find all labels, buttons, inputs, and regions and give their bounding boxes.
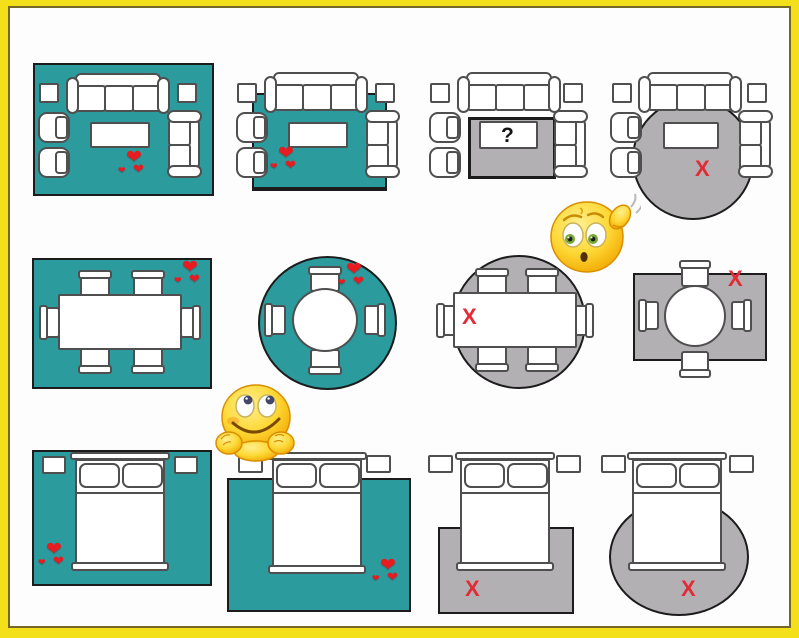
bedroom-1-pillow-left xyxy=(79,463,120,488)
dining-1-chair-left xyxy=(40,307,60,338)
bedroom-3-nightstand-right xyxy=(556,455,581,473)
living-1-armchair-bottom xyxy=(38,147,70,178)
dining-4-round-table xyxy=(664,285,726,347)
living-1-sofa xyxy=(66,73,170,112)
blanket-fold-line xyxy=(634,492,720,494)
living-4-loveseat xyxy=(736,110,771,178)
x-mark: X xyxy=(465,578,480,600)
living-3-sofa xyxy=(457,72,561,111)
bedroom-4-footboard xyxy=(628,562,726,571)
heart-icon: ❤ xyxy=(353,275,364,288)
bedroom-3-pillow-right xyxy=(507,463,548,488)
hearts-mark: ❤ ❤ ❤ xyxy=(338,260,374,296)
living-2-sofa xyxy=(264,72,368,111)
living-4-sofa xyxy=(638,72,742,111)
living-4-armchair-bottom xyxy=(610,147,642,178)
heart-icon: ❤ xyxy=(189,273,200,286)
x-mark: X xyxy=(681,578,696,600)
living-3-loveseat xyxy=(551,110,586,178)
living-1-coffee-table xyxy=(90,122,150,148)
bedroom-1-footboard xyxy=(71,562,169,571)
living-2-side-table-right xyxy=(375,83,395,103)
living-4-side-table-left xyxy=(612,83,632,103)
hearts-mark: ❤ ❤ ❤ xyxy=(38,540,74,576)
hearts-mark: ❤ ❤ ❤ xyxy=(174,258,210,294)
living-4-coffee-table xyxy=(663,122,719,149)
sofa-arm-left xyxy=(66,77,79,114)
bedroom-3-nightstand-left xyxy=(428,455,453,473)
blanket-fold-line xyxy=(462,492,548,494)
bedroom-2-pillow-right xyxy=(319,463,360,488)
living-2-side-table-left xyxy=(237,83,257,103)
living-4-side-table-right xyxy=(747,83,767,103)
heart-icon: ❤ xyxy=(174,277,182,286)
dining-2-chair-right xyxy=(364,305,385,335)
bedroom-1-headboard xyxy=(70,452,170,460)
heart-icon: ❤ xyxy=(53,555,64,568)
sofa-cushions xyxy=(76,85,160,112)
sofa-arm-right xyxy=(157,77,170,114)
dining-4-chair-top xyxy=(681,261,709,287)
living-1-loveseat xyxy=(165,110,200,178)
living-3-armchair-top xyxy=(429,112,461,143)
bedroom-4-nightstand-left xyxy=(601,455,626,473)
bedroom-4-nightstand-right xyxy=(729,455,754,473)
heart-icon: ❤ xyxy=(270,163,278,172)
heart-icon: ❤ xyxy=(338,279,346,288)
dining-4-chair-left xyxy=(639,301,659,330)
x-mark: X xyxy=(462,306,477,328)
dining-2-round-table xyxy=(292,288,358,352)
heart-icon: ❤ xyxy=(38,559,46,568)
hearts-mark: ❤ ❤ ❤ xyxy=(372,556,408,592)
living-3-side-table-right xyxy=(563,83,583,103)
bedroom-1-nightstand-left xyxy=(42,456,66,474)
dining-2-chair-bottom xyxy=(310,349,340,374)
dining-2-chair-left xyxy=(265,305,286,335)
bedroom-1-nightstand-right xyxy=(174,456,198,474)
heart-icon: ❤ xyxy=(387,571,398,584)
question-mark: ? xyxy=(501,125,514,146)
bedroom-3-headboard xyxy=(455,452,555,460)
bedroom-3-footboard xyxy=(456,562,554,571)
living-3-armchair-bottom xyxy=(429,147,461,178)
dining-1-chair-bottom-2 xyxy=(133,347,163,373)
living-2-armchair-bottom xyxy=(236,147,268,178)
bedroom-4-headboard xyxy=(627,452,727,460)
hearts-mark: ❤ ❤ ❤ xyxy=(118,148,154,184)
bedroom-2-nightstand-right xyxy=(366,455,391,473)
dining-3-chair-bottom-2 xyxy=(527,345,557,371)
heart-icon: ❤ xyxy=(133,163,144,176)
heart-icon: ❤ xyxy=(118,167,126,176)
blanket-fold-line xyxy=(77,492,163,494)
living-3-side-table-left xyxy=(430,83,450,103)
living-1-armchair-top xyxy=(38,112,70,143)
dining-4-chair-right xyxy=(731,301,751,330)
confused-scratching-head-emoji xyxy=(543,191,641,280)
dining-3-chair-bottom-1 xyxy=(477,345,507,371)
living-1-side-table-left xyxy=(39,83,59,103)
bedroom-4-pillow-left xyxy=(636,463,677,488)
bedroom-4-pillow-right xyxy=(679,463,720,488)
bedroom-1-pillow-right xyxy=(122,463,163,488)
living-1-side-table-right xyxy=(177,83,197,103)
heart-icon: ❤ xyxy=(285,159,296,172)
dining-1-chair-right xyxy=(180,307,200,338)
x-mark: X xyxy=(728,268,743,290)
living-4-armchair-top xyxy=(610,112,642,143)
hearts-mark: ❤ ❤ ❤ xyxy=(270,144,306,180)
dining-1-chair-bottom-1 xyxy=(80,347,110,373)
heart-icon: ❤ xyxy=(372,575,380,584)
bedroom-3-pillow-left xyxy=(464,463,505,488)
rug-placement-infographic: ❤ ❤ ❤ ❤ ❤ ❤ ? xyxy=(0,0,799,638)
dining-1-table xyxy=(58,294,182,350)
x-mark: X xyxy=(695,158,710,180)
living-2-loveseat xyxy=(363,110,398,178)
blanket-fold-line xyxy=(274,492,360,494)
bedroom-2-footboard xyxy=(268,565,366,574)
daydreaming-hands-on-chin-emoji xyxy=(211,381,303,468)
living-2-armchair-top xyxy=(236,112,268,143)
dining-4-chair-bottom xyxy=(681,351,709,377)
